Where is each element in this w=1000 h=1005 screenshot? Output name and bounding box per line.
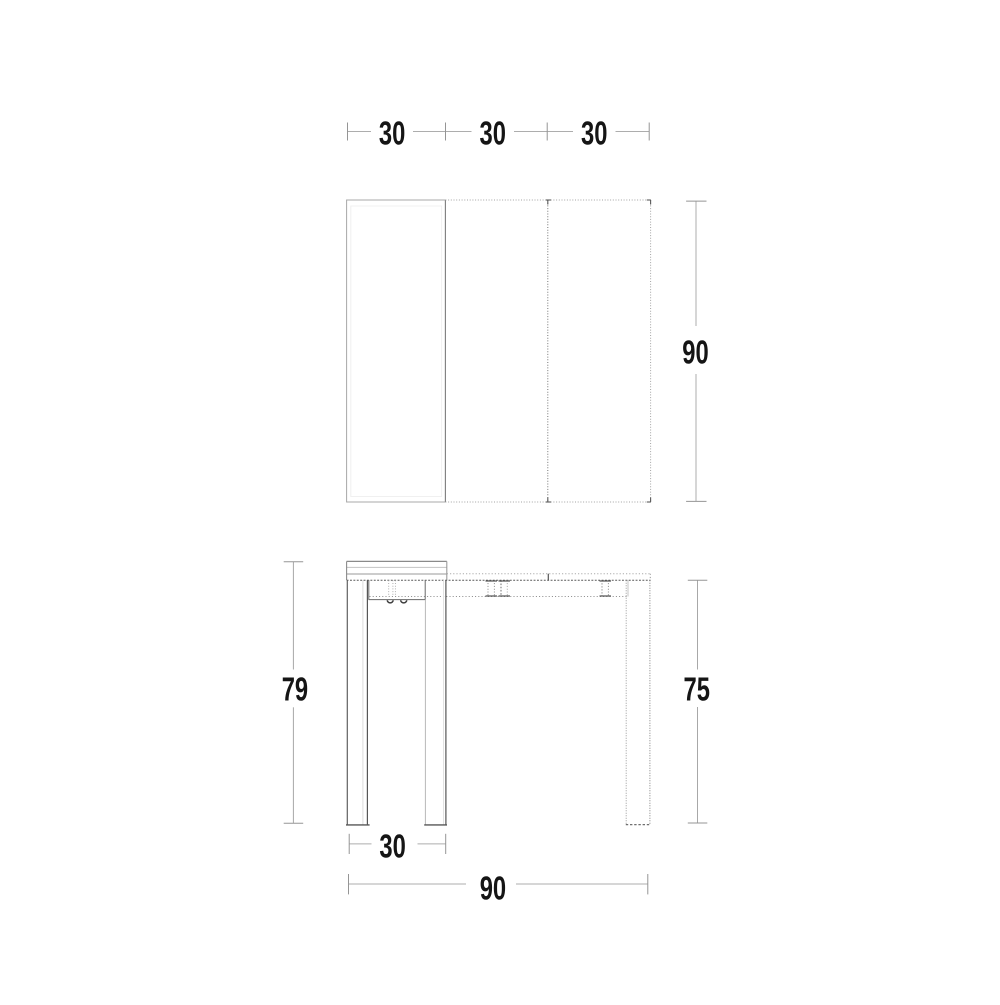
svg-text:90: 90 [480,871,506,908]
svg-text:30: 30 [379,829,405,866]
svg-text:30: 30 [479,116,505,153]
svg-text:75: 75 [683,672,709,709]
svg-text:30: 30 [581,116,607,153]
svg-text:79: 79 [282,672,308,709]
svg-text:30: 30 [379,116,405,153]
svg-text:90: 90 [682,335,708,372]
